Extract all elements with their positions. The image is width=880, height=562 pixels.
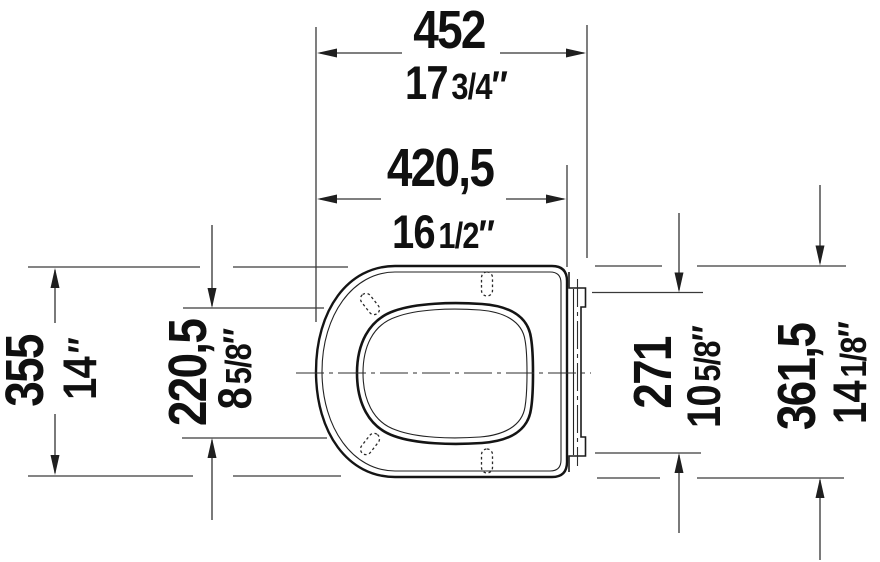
inch-whole: 10 [677,385,730,428]
arrowhead-up [208,438,217,458]
dim-body-width-mm: 420,5 [387,141,493,195]
dim-hinge-inner-inch: 85/8″ [211,329,259,410]
dim-overall-depth-mm: 355 [0,335,52,406]
dim-body-width-inch: 161/2″ [392,208,494,256]
inch-fraction: 5/8 [218,344,259,384]
inch-fraction: 5/8 [687,341,728,381]
inch-mark: ″ [831,322,875,337]
arrowhead-up [675,453,684,473]
dim-overall-width-mm: 452 [413,3,484,57]
arrowhead-left [317,195,337,204]
dim-seat-depth-inch: 141/8″ [826,322,874,424]
arrowhead-up [816,478,825,498]
dim-hinge-inner-mm: 220,5 [161,320,215,426]
inch-fraction: 1/2 [438,215,478,256]
inch-whole: 17 [405,56,448,109]
inch-mark: ″ [492,64,507,108]
inch-mark: ″ [61,338,105,353]
arrowhead-right [546,195,566,204]
dim-hinge-plate-mm: 271 [626,337,680,408]
arrowhead-down [208,288,217,308]
inch-whole: 14 [823,381,876,424]
inch-fraction: 3/4 [451,66,491,107]
toilet-seat-dimension-drawing: 452 173/4″ 420,5 161/2″ 355 14″ 220,5 85… [0,0,880,562]
inch-mark: ″ [685,326,729,341]
inch-mark: ″ [216,329,260,344]
arrowhead-down [51,455,60,475]
arrowhead-left [317,49,337,58]
inch-whole: 16 [392,205,435,258]
dim-overall-depth-inch: 14″ [56,338,104,400]
arrowhead-right [566,49,586,58]
dim-hinge-plate-inch: 105/8″ [680,326,728,428]
arrowhead-up [51,268,60,288]
arrowhead-down [816,246,825,266]
dim-seat-depth-mm: 361,5 [770,324,824,430]
arrowhead-down [675,273,684,293]
inch-whole: 8 [208,388,261,409]
seat-plan-view [296,266,591,477]
inch-mark: ″ [479,213,494,257]
dim-overall-width-inch: 173/4″ [405,59,507,107]
inch-fraction: 1/8 [833,337,874,377]
inch-whole: 14 [53,357,106,400]
